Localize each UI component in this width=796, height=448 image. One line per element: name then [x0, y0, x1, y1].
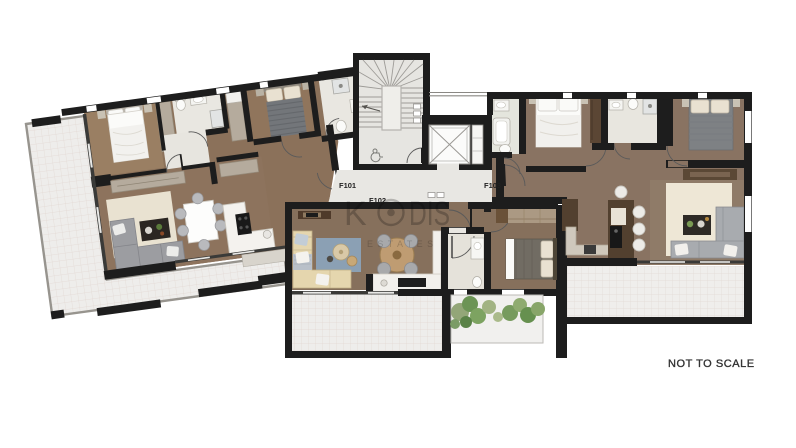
svg-text:ESTATES: ESTATES	[367, 239, 437, 249]
svg-text:F103: F103	[484, 181, 501, 190]
svg-text:F101: F101	[339, 181, 356, 190]
svg-text:DIS: DIS	[409, 195, 450, 233]
svg-text:K: K	[344, 195, 372, 233]
svg-text:NOT TO SCALE: NOT TO SCALE	[668, 358, 755, 370]
